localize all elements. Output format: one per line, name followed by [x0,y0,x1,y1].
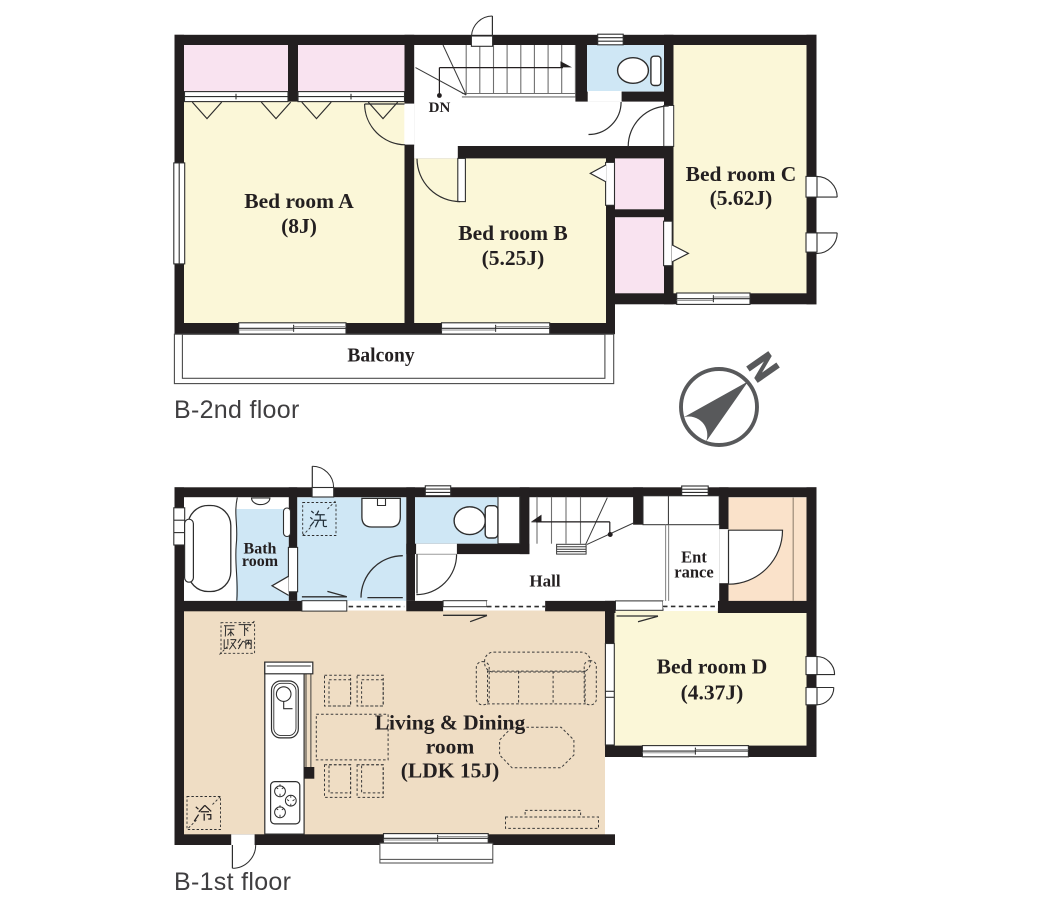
svg-text:Bed room A: Bed room A [244,189,354,213]
svg-text:DN: DN [429,100,451,116]
svg-text:Bed room B: Bed room B [458,221,568,245]
svg-text:(4.37J): (4.37J) [681,681,744,705]
svg-text:Bed room C: Bed room C [686,162,797,186]
svg-text:(LDK 15J): (LDK 15J) [401,759,500,783]
svg-text:Bed room D: Bed room D [657,655,768,679]
svg-text:room: room [242,553,279,570]
svg-text:B-2nd floor: B-2nd floor [174,396,300,424]
svg-text:B-1st floor: B-1st floor [174,868,291,896]
svg-text:(5.62J): (5.62J) [710,186,773,210]
svg-text:Living & Dining: Living & Dining [375,711,526,735]
svg-text:room: room [426,735,475,759]
svg-text:Balcony: Balcony [347,346,414,367]
svg-text:rance: rance [674,563,713,582]
svg-text:(8J): (8J) [281,214,317,238]
svg-text:(5.25J): (5.25J) [482,246,545,270]
svg-text:Hall: Hall [529,572,560,591]
